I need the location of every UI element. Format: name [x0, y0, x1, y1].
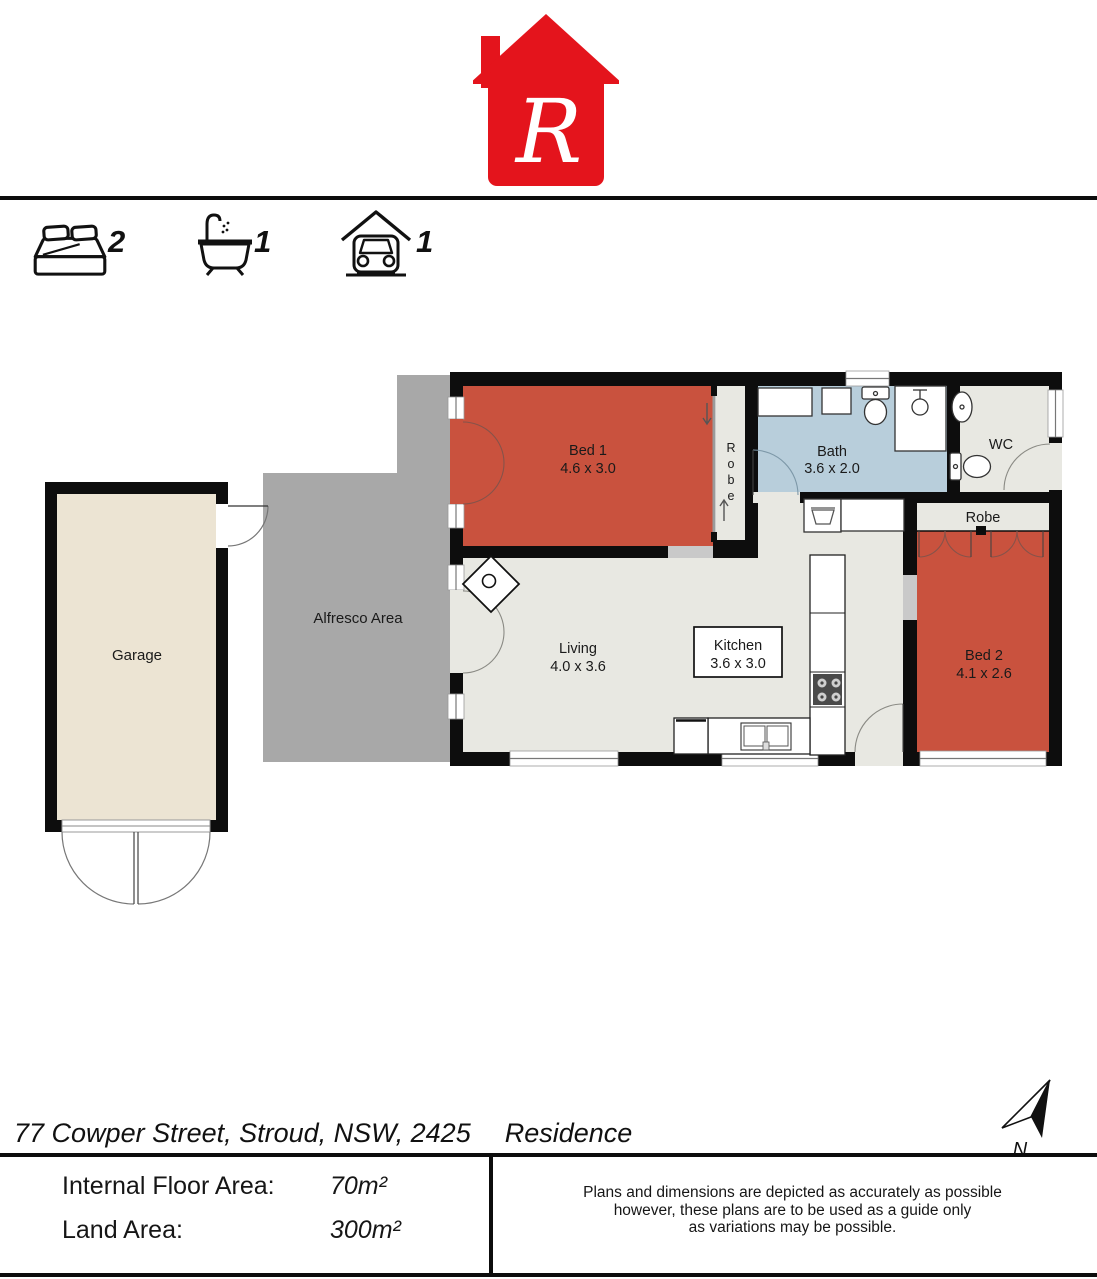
footer-divider	[0, 1153, 1097, 1157]
bed2-door-opening	[903, 575, 917, 620]
svg-text:R: R	[726, 441, 735, 455]
robe2-label: Robe	[966, 510, 1001, 526]
wc-door-gap	[1049, 443, 1062, 490]
land-area-value: 300m²	[330, 1216, 401, 1245]
bed1-label: Bed 1	[569, 443, 607, 459]
kitchen-label: Kitchen	[714, 638, 762, 654]
disclaimer-line1: Plans and dimensions are depicted as acc…	[505, 1184, 1080, 1202]
address-street: 77 Cowper Street, Stroud, NSW, 2425	[14, 1118, 471, 1148]
alfresco-area	[263, 375, 453, 762]
bed2-label: Bed 2	[965, 648, 1003, 664]
bath-label: Bath	[817, 444, 847, 460]
disclaimer: Plans and dimensions are depicted as acc…	[505, 1184, 1080, 1237]
floorplan-page: R 2 1	[0, 0, 1097, 1279]
north-label: N	[1013, 1139, 1028, 1161]
bed2-floor	[917, 531, 1049, 752]
wc-label: WC	[989, 437, 1013, 453]
bed1-dims: 4.6 x 3.0	[560, 461, 616, 477]
kitchen-dims: 3.6 x 3.0	[710, 656, 766, 672]
svg-text:o: o	[728, 457, 735, 471]
garage-double-doors	[62, 832, 210, 904]
cabinet	[822, 388, 851, 414]
floor-area-label: Internal Floor Area:	[62, 1172, 275, 1201]
alfresco-label: Alfresco Area	[313, 610, 403, 627]
bath-door-gap	[753, 492, 800, 503]
bed1-french-door-gap	[450, 419, 463, 504]
bottom-edge-bar	[0, 1273, 1097, 1277]
garage-entry-door	[228, 506, 268, 546]
entry-door-gap	[855, 752, 903, 766]
living-dims: 4.0 x 3.6	[550, 659, 606, 675]
svg-text:b: b	[728, 473, 735, 487]
vanity	[758, 388, 812, 416]
address-line: 77 Cowper Street, Stroud, NSW, 2425Resid…	[14, 1118, 632, 1149]
laundry-units	[804, 499, 904, 532]
bath-dims: 3.6 x 2.0	[804, 461, 860, 477]
garage-label: Garage	[112, 647, 162, 664]
disclaimer-line2: however, these plans are to be used as a…	[505, 1202, 1080, 1220]
garage-room	[45, 482, 268, 904]
living-label: Living	[559, 641, 597, 657]
disclaimer-line3: as variations may be possible.	[505, 1219, 1080, 1237]
toilet-bowl	[865, 400, 887, 425]
svg-text:e: e	[728, 489, 735, 503]
wc-toilet-bowl	[964, 456, 991, 478]
bed1-opening	[668, 546, 713, 558]
floor-area-value: 70m²	[330, 1172, 387, 1201]
floor-plan: Bed 1 4.6 x 3.0 Bath 3.6 x 2.0 WC Robe B…	[0, 0, 1097, 1279]
footer-vertical-divider	[489, 1157, 493, 1275]
north-arrow-icon: N	[1002, 1080, 1050, 1161]
living-french-door-gap	[450, 590, 463, 673]
bed2-dims: 4.1 x 2.6	[956, 666, 1012, 682]
kitchen-appliance	[674, 718, 708, 754]
land-area-label: Land Area:	[62, 1216, 183, 1245]
address-type: Residence	[505, 1118, 633, 1148]
